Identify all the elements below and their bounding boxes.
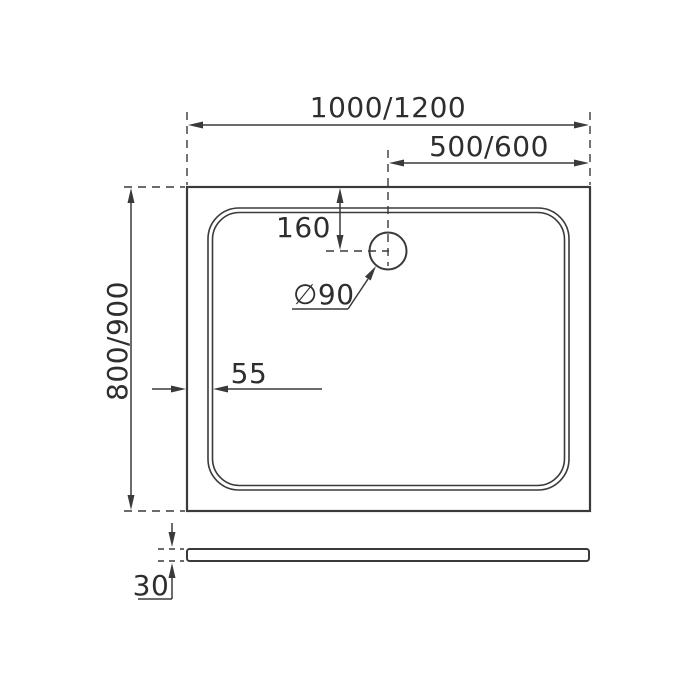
dim-overall-depth: 800/900 <box>101 188 135 510</box>
dim-overall-width: 1000/1200 <box>188 91 589 129</box>
arrowhead-down <box>128 495 135 510</box>
dim-drain-offset-x: 500/600 <box>389 130 589 167</box>
arrowhead-left <box>188 122 203 129</box>
arrowhead-right <box>574 160 589 167</box>
side-view: 30 <box>133 523 589 602</box>
arrowhead-down <box>169 532 176 547</box>
dim-drain-offset-y-label: 160 <box>276 211 331 244</box>
dim-overall-width-label: 1000/1200 <box>310 91 466 124</box>
arrowhead-right <box>171 386 186 393</box>
arrowhead-left <box>389 160 404 167</box>
top-view: 1000/1200 500/600 160 ∅90 <box>101 91 590 511</box>
shower-tray-drawing: 1000/1200 500/600 160 ∅90 <box>0 0 700 700</box>
dim-drain-offset-x-label: 500/600 <box>429 130 549 163</box>
tray-side-profile <box>187 549 589 561</box>
arrowhead-up <box>169 563 176 578</box>
dim-overall-depth-label: 800/900 <box>101 281 134 401</box>
dim-thickness: 30 <box>133 523 184 602</box>
technical-drawing-page: 1000/1200 500/600 160 ∅90 <box>0 0 700 700</box>
dim-thickness-label: 30 <box>133 569 170 602</box>
dim-rim-width-label: 55 <box>231 357 268 390</box>
dim-drain-diameter-label: ∅90 <box>293 278 355 311</box>
arrowhead-up <box>128 188 135 203</box>
arrowhead-right <box>574 122 589 129</box>
